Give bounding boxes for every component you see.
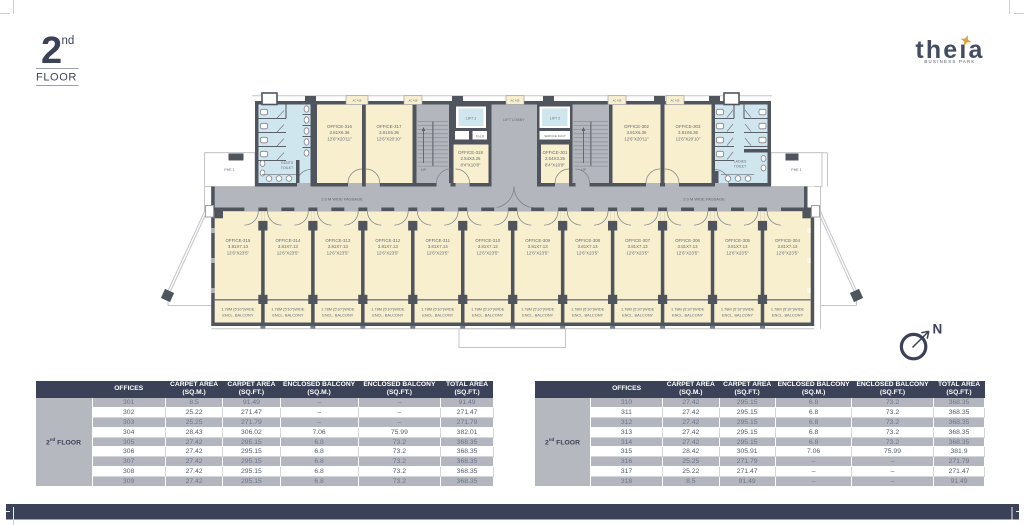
svg-text:AC 419: AC 419 (671, 99, 680, 103)
svg-text:LIFT 2: LIFT 2 (550, 117, 560, 121)
svg-text:12'6"X23'5": 12'6"X23'5" (227, 250, 250, 255)
svg-text:OFFICE-314: OFFICE-314 (275, 238, 300, 243)
svg-text:2.54X3.25: 2.54X3.25 (545, 156, 566, 161)
svg-text:2.0 M WIDE PASSAGE: 2.0 M WIDE PASSAGE (683, 197, 725, 202)
svg-text:OFFICE-305: OFFICE-305 (725, 238, 750, 243)
svg-text:3.81X7.13: 3.81X7.13 (678, 244, 699, 249)
svg-text:OFFICE-316: OFFICE-316 (327, 124, 352, 129)
svg-text:3.81X7.13: 3.81X7.13 (528, 244, 549, 249)
svg-text:3.81X6.36: 3.81X6.36 (329, 130, 350, 135)
svg-text:AC 419: AC 419 (409, 99, 418, 103)
svg-text:1.78M (5'10")WIDE: 1.78M (5'10")WIDE (521, 307, 555, 312)
svg-text:ENCL. BALCONY: ENCL. BALCONY (572, 313, 604, 318)
svg-text:1.78M (5'10")WIDE: 1.78M (5'10")WIDE (571, 307, 605, 312)
svg-text:UP: UP (581, 168, 587, 172)
svg-text:GENTS: GENTS (281, 161, 294, 165)
svg-text:FLOOR: FLOOR (36, 72, 77, 84)
svg-text:3.81X6.36: 3.81X6.36 (379, 130, 400, 135)
svg-text:3.81X7.13: 3.81X7.13 (228, 244, 249, 249)
svg-text:2: 2 (41, 30, 62, 72)
svg-text:2.54X3.25: 2.54X3.25 (460, 156, 481, 161)
svg-text:3.81X7.13: 3.81X7.13 (378, 244, 399, 249)
svg-text:3.81X7.13: 3.81X7.13 (328, 244, 349, 249)
svg-text:1.78M (5'10")WIDE: 1.78M (5'10")WIDE (371, 307, 405, 312)
svg-text:OFFICE-312: OFFICE-312 (375, 238, 400, 243)
svg-text:AC 419: AC 419 (613, 99, 622, 103)
svg-text:LIFT 1: LIFT 1 (466, 117, 476, 121)
svg-text:UP: UP (421, 168, 427, 172)
svg-text:12'6"X23'5": 12'6"X23'5" (477, 250, 500, 255)
svg-text:ENCL. BALCONY: ENCL. BALCONY (372, 313, 404, 318)
svg-text:12'6"X23'5": 12'6"X23'5" (427, 250, 450, 255)
svg-text:1.78M (5'10")WIDE: 1.78M (5'10")WIDE (271, 307, 305, 312)
svg-text:nd: nd (62, 35, 75, 47)
svg-text:PHE 1: PHE 1 (224, 168, 234, 172)
svg-text:3.81X6.36: 3.81X6.36 (626, 130, 647, 135)
svg-text:OFFICE-317: OFFICE-317 (377, 124, 402, 129)
svg-text:2.0 M WIDE PASSAGE: 2.0 M WIDE PASSAGE (321, 197, 363, 202)
svg-text:1.78M (5'10")WIDE: 1.78M (5'10")WIDE (671, 307, 705, 312)
svg-text:1.78M (5'10")WIDE: 1.78M (5'10")WIDE (721, 307, 755, 312)
svg-text:ENCL. BALCONY: ENCL. BALCONY (222, 313, 254, 318)
svg-text:3.81X6.36: 3.81X6.36 (678, 130, 699, 135)
svg-text:12'6"X20'10": 12'6"X20'10" (377, 136, 402, 141)
svg-text:3.81X7.13: 3.81X7.13 (628, 244, 649, 249)
svg-text:8'4"X10'8": 8'4"X10'8" (461, 162, 481, 167)
svg-text:OFFICE-310: OFFICE-310 (475, 238, 500, 243)
svg-text:BUSINESS PARK: BUSINESS PARK (924, 59, 975, 64)
svg-text:OFFICE-311: OFFICE-311 (425, 238, 450, 243)
svg-text:12'6"X20'11": 12'6"X20'11" (624, 136, 649, 141)
svg-text:TOILET: TOILET (734, 165, 747, 169)
svg-text:8'4"X10'8": 8'4"X10'8" (545, 162, 565, 167)
svg-text:3.81X7.13: 3.81X7.13 (727, 244, 748, 249)
svg-text:OFFICE-303: OFFICE-303 (676, 124, 701, 129)
svg-text:ENCL. BALCONY: ENCL. BALCONY (472, 313, 504, 318)
svg-text:OFFICE-307: OFFICE-307 (625, 238, 650, 243)
svg-text:12'6"X23'5": 12'6"X23'5" (277, 250, 300, 255)
svg-text:OFFICE-309: OFFICE-309 (525, 238, 550, 243)
svg-text:F.H.R: F.H.R (476, 135, 485, 139)
svg-text:12'6"X20'10": 12'6"X20'10" (676, 136, 701, 141)
svg-text:TOILET: TOILET (281, 166, 294, 170)
svg-text:12'6"X23'5": 12'6"X23'5" (676, 250, 699, 255)
svg-text:12'6"X23'5": 12'6"X23'5" (526, 250, 549, 255)
svg-text:12'6"X23'5": 12'6"X23'5" (576, 250, 599, 255)
svg-text:ENCL. BALCONY: ENCL. BALCONY (672, 313, 704, 318)
svg-text:12'6"X20'11": 12'6"X20'11" (327, 136, 352, 141)
svg-text:1.78M (5'10")WIDE: 1.78M (5'10")WIDE (421, 307, 455, 312)
svg-text:OFFICE-318: OFFICE-318 (458, 150, 483, 155)
svg-text:OFFICE-306: OFFICE-306 (675, 238, 700, 243)
svg-text:AC 419: AC 419 (353, 99, 362, 103)
svg-text:3.81X7.13: 3.81X7.13 (428, 244, 449, 249)
svg-text:PHE 1: PHE 1 (791, 168, 801, 172)
svg-text:LIFT LOBBY: LIFT LOBBY (503, 118, 525, 122)
svg-text:OFFICE-308: OFFICE-308 (575, 238, 600, 243)
svg-text:ENCL. BALCONY: ENCL. BALCONY (322, 313, 354, 318)
svg-text:1.78M (5'10")WIDE: 1.78M (5'10")WIDE (471, 307, 505, 312)
svg-text:ENCL. BALCONY: ENCL. BALCONY (622, 313, 654, 318)
svg-text:OFFICE-313: OFFICE-313 (325, 238, 350, 243)
svg-text:3.81X7.13: 3.81X7.13 (478, 244, 499, 249)
svg-text:3.81X7.13: 3.81X7.13 (777, 244, 798, 249)
svg-text:LADIES: LADIES (734, 160, 747, 164)
svg-text:OFFICE-302: OFFICE-302 (624, 124, 649, 129)
svg-text:OFFICE-315: OFFICE-315 (225, 238, 250, 243)
svg-text:ENCL. BALCONY: ENCL. BALCONY (772, 313, 804, 318)
svg-text:AC 419: AC 419 (511, 99, 520, 103)
svg-text:SERVICE DUCT: SERVICE DUCT (544, 134, 566, 138)
svg-text:12'6"X23'5": 12'6"X23'5" (327, 250, 350, 255)
svg-text:12'6"X23'5": 12'6"X23'5" (626, 250, 649, 255)
svg-text:1.78M (5'10")WIDE: 1.78M (5'10")WIDE (321, 307, 355, 312)
svg-text:12'6"X23'5": 12'6"X23'5" (776, 250, 799, 255)
svg-text:12'6"X23'5": 12'6"X23'5" (377, 250, 400, 255)
svg-text:12'6"X23'5": 12'6"X23'5" (726, 250, 749, 255)
svg-text:ENCL. BALCONY: ENCL. BALCONY (272, 313, 304, 318)
svg-text:3.81X7.13: 3.81X7.13 (278, 244, 299, 249)
svg-text:ENCL. BALCONY: ENCL. BALCONY (722, 313, 754, 318)
svg-text:1.78M (5'10")WIDE: 1.78M (5'10")WIDE (221, 307, 255, 312)
svg-text:OFFICE-304: OFFICE-304 (775, 238, 800, 243)
svg-text:3.81X7.13: 3.81X7.13 (578, 244, 599, 249)
svg-text:ENCL. BALCONY: ENCL. BALCONY (422, 313, 454, 318)
svg-text:N: N (933, 322, 943, 337)
svg-text:1.78M (5'10")WIDE: 1.78M (5'10")WIDE (771, 307, 805, 312)
svg-text:ENCL. BALCONY: ENCL. BALCONY (522, 313, 554, 318)
svg-text:1.78M (5'10")WIDE: 1.78M (5'10")WIDE (621, 307, 655, 312)
svg-text:OFFICE-301: OFFICE-301 (543, 150, 568, 155)
